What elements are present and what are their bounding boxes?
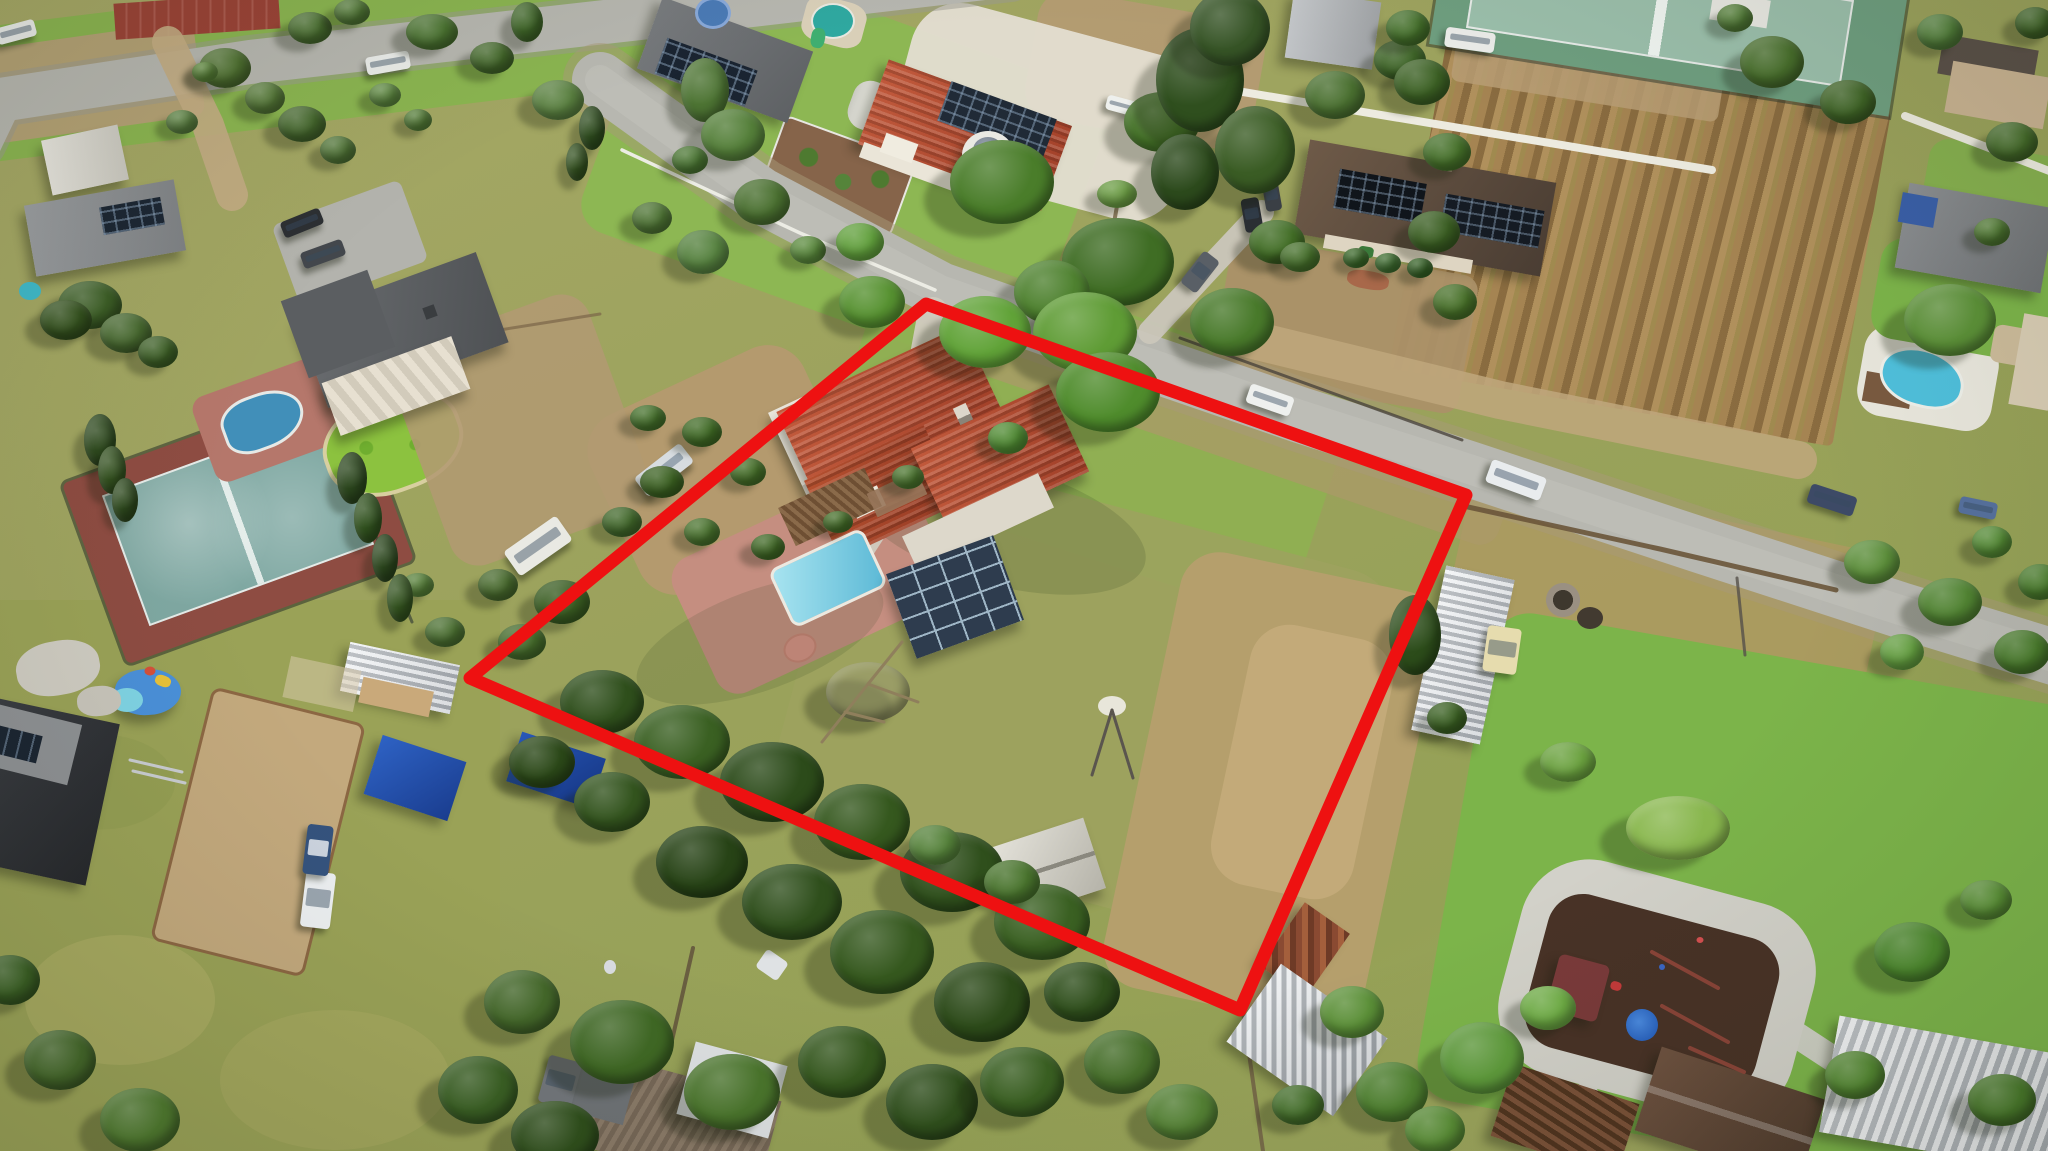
property-boundary-line <box>470 304 1466 1010</box>
aerial-property-photo <box>0 0 2048 1151</box>
property-boundary-overlay <box>0 0 2048 1151</box>
